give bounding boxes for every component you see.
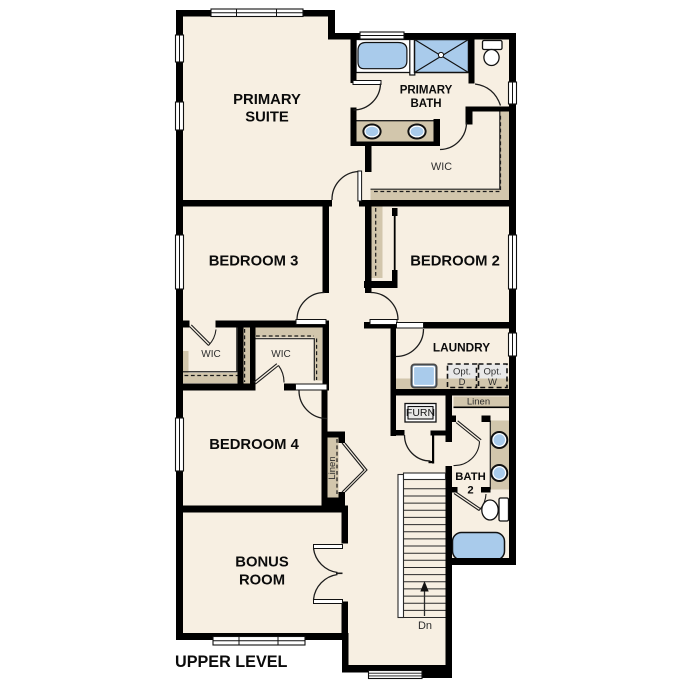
svg-text:Opt.: Opt. (453, 367, 471, 378)
svg-text:LAUNDRY: LAUNDRY (433, 341, 490, 355)
svg-text:BEDROOM 3: BEDROOM 3 (209, 254, 299, 270)
svg-text:BATH: BATH (455, 471, 486, 483)
svg-text:2: 2 (467, 485, 473, 497)
svg-text:WIC: WIC (271, 349, 290, 360)
svg-text:BEDROOM 4: BEDROOM 4 (209, 437, 299, 453)
svg-text:BEDROOM 2: BEDROOM 2 (410, 254, 500, 270)
svg-text:WIC: WIC (431, 161, 452, 173)
svg-text:SUITE: SUITE (245, 110, 289, 126)
svg-text:PRIMARY: PRIMARY (233, 92, 301, 108)
svg-text:FURN: FURN (406, 407, 435, 419)
svg-text:BONUS: BONUS (235, 555, 289, 571)
svg-text:Linen: Linen (327, 456, 338, 479)
svg-text:UPPER LEVEL: UPPER LEVEL (175, 653, 288, 671)
svg-text:D: D (459, 377, 466, 388)
svg-text:BATH: BATH (410, 98, 441, 110)
svg-text:ROOM: ROOM (239, 573, 285, 589)
svg-text:PRIMARY: PRIMARY (400, 85, 453, 97)
svg-text:Dn: Dn (418, 620, 432, 632)
svg-text:Opt.: Opt. (484, 367, 502, 378)
svg-text:W: W (488, 377, 497, 388)
svg-text:Linen: Linen (467, 397, 490, 408)
svg-text:WIC: WIC (201, 349, 220, 360)
